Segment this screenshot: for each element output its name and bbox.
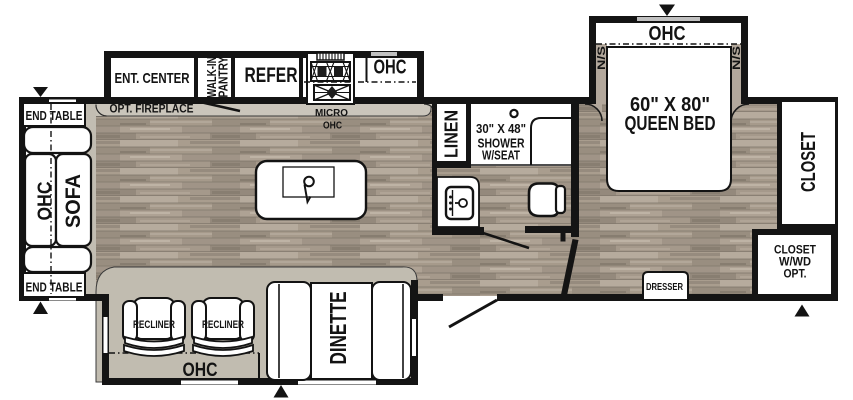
- svg-text:OPT. FIREPLACE: OPT. FIREPLACE: [110, 102, 194, 116]
- svg-text:OHC: OHC: [649, 23, 686, 45]
- svg-text:DRESSER: DRESSER: [646, 281, 683, 293]
- svg-text:CLOSET: CLOSET: [798, 132, 820, 192]
- svg-text:OHC: OHC: [183, 360, 218, 381]
- svg-text:OHC: OHC: [323, 120, 342, 132]
- svg-text:OPT.: OPT.: [784, 269, 807, 281]
- svg-text:W/WD: W/WD: [779, 257, 811, 269]
- svg-text:REFER: REFER: [245, 64, 298, 87]
- svg-text:SOFA: SOFA: [62, 174, 85, 228]
- svg-text:MICRO: MICRO: [315, 107, 348, 119]
- svg-text:N/S: N/S: [731, 46, 743, 70]
- svg-text:W/SEAT: W/SEAT: [482, 148, 520, 163]
- svg-text:OHC: OHC: [35, 181, 56, 220]
- svg-text:30" X 48": 30" X 48": [476, 121, 526, 136]
- svg-text:END TABLE: END TABLE: [26, 108, 83, 123]
- svg-text:LINEN: LINEN: [442, 110, 462, 158]
- svg-text:RECLINER: RECLINER: [133, 319, 175, 331]
- svg-text:END TABLE: END TABLE: [26, 280, 83, 295]
- svg-text:PANTRY: PANTRY: [217, 56, 231, 98]
- svg-text:OHC: OHC: [374, 57, 407, 79]
- svg-text:QUEEN BED: QUEEN BED: [625, 113, 716, 135]
- svg-text:RECLINER: RECLINER: [202, 319, 244, 331]
- svg-text:DINETTE: DINETTE: [325, 292, 351, 365]
- svg-text:ENT. CENTER: ENT. CENTER: [115, 70, 190, 87]
- svg-text:CLOSET: CLOSET: [774, 245, 816, 257]
